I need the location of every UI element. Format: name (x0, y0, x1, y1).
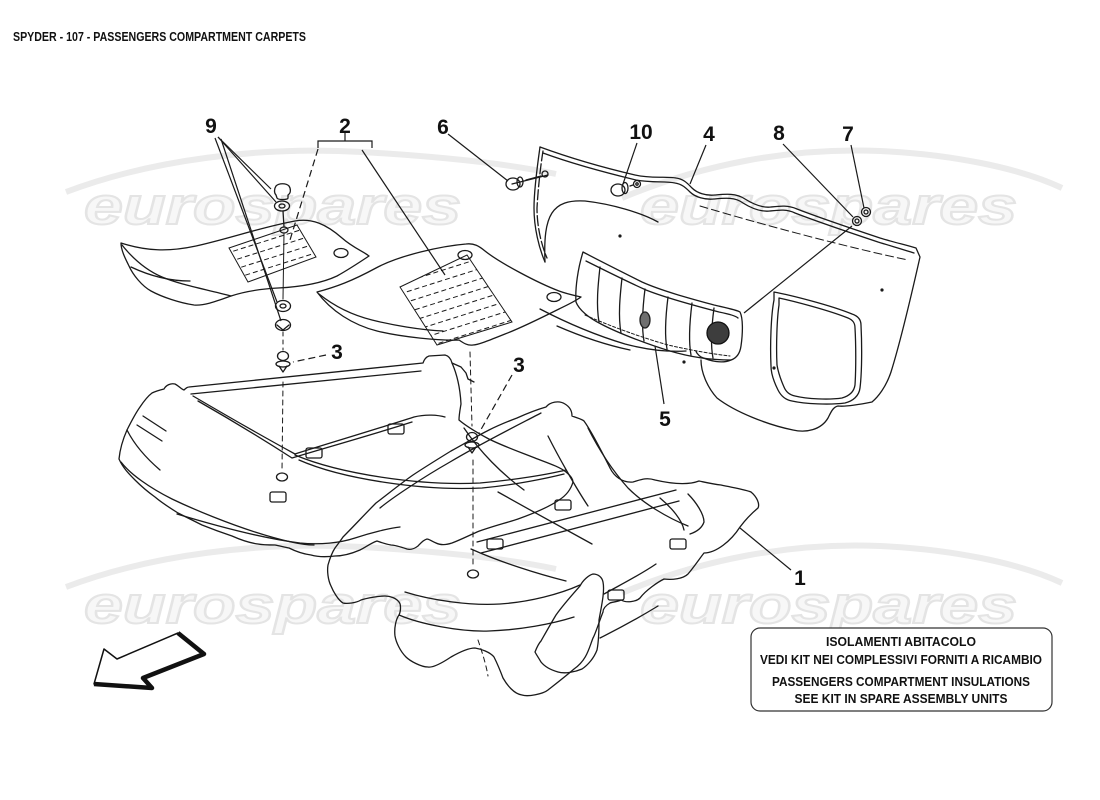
svg-text:9: 9 (205, 115, 217, 138)
svg-text:2: 2 (339, 115, 351, 138)
svg-text:6: 6 (437, 116, 449, 139)
svg-text:1: 1 (794, 567, 806, 590)
svg-text:10: 10 (629, 121, 652, 144)
svg-text:3: 3 (513, 354, 525, 377)
svg-text:4: 4 (703, 123, 715, 146)
svg-text:SPYDER - 107 - PASSENGERS COMP: SPYDER - 107 - PASSENGERS COMPARTMENT CA… (13, 30, 306, 44)
svg-text:eurospares: eurospares (640, 576, 1017, 635)
svg-text:ISOLAMENTI ABITACOLO: ISOLAMENTI ABITACOLO (826, 635, 976, 649)
svg-text:PASSENGERS COMPARTMENT INSULAT: PASSENGERS COMPARTMENT INSULATIONS (772, 675, 1030, 689)
svg-text:3: 3 (331, 341, 343, 364)
svg-text:eurospares: eurospares (84, 177, 461, 236)
svg-text:eurospares: eurospares (640, 177, 1017, 236)
svg-text:8: 8 (773, 122, 785, 145)
svg-text:SEE KIT IN SPARE ASSEMBLY UNIT: SEE KIT IN SPARE ASSEMBLY UNITS (795, 692, 1008, 706)
svg-text:7: 7 (842, 123, 854, 146)
svg-text:VEDI KIT NEI COMPLESSIVI FORNI: VEDI KIT NEI COMPLESSIVI FORNITI A RICAM… (760, 653, 1042, 667)
svg-text:5: 5 (659, 408, 671, 431)
svg-text:eurospares: eurospares (84, 576, 461, 635)
